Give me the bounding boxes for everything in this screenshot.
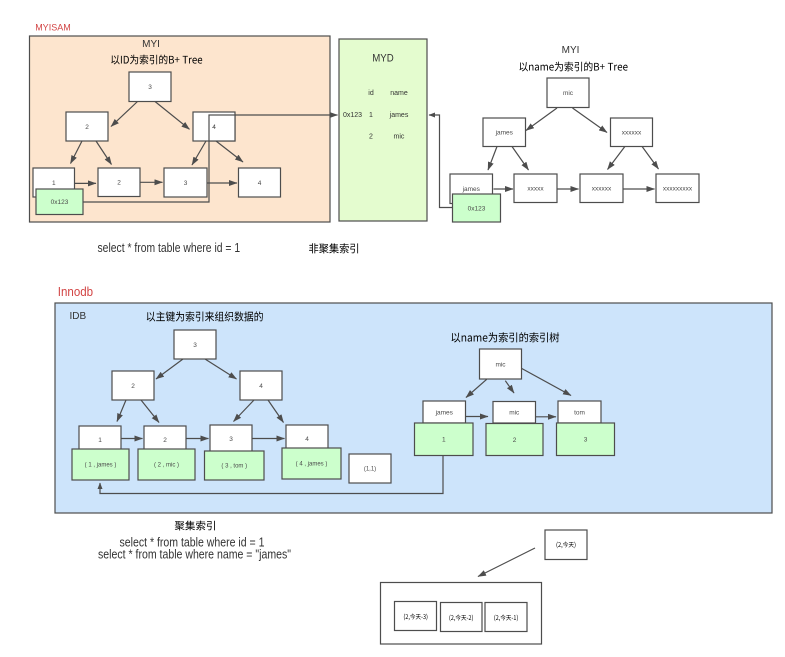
svg-text:xxxxxxxxx: xxxxxxxxx bbox=[663, 186, 693, 193]
svg-text:3: 3 bbox=[584, 437, 588, 444]
svg-text:4: 4 bbox=[305, 436, 309, 443]
svg-text:4: 4 bbox=[258, 180, 262, 187]
svg-text:3: 3 bbox=[229, 436, 233, 443]
svg-text:james: james bbox=[495, 130, 514, 137]
svg-text:xxxxxx: xxxxxx bbox=[622, 130, 642, 137]
svg-text:2: 2 bbox=[163, 437, 167, 444]
svg-text:1: 1 bbox=[98, 437, 102, 444]
svg-text:1: 1 bbox=[369, 112, 373, 119]
svg-text:2: 2 bbox=[131, 383, 135, 390]
svg-text:( 1 , james ): ( 1 , james ) bbox=[85, 463, 117, 469]
svg-text:select * from table where name: select * from table where name = "james" bbox=[98, 548, 291, 562]
svg-text:tom: tom bbox=[574, 409, 585, 416]
svg-text:xxxxxx: xxxxxx bbox=[592, 186, 612, 193]
svg-text:(1,1): (1,1) bbox=[364, 467, 376, 473]
svg-text:0x123: 0x123 bbox=[468, 205, 486, 212]
svg-text:2: 2 bbox=[117, 180, 121, 187]
svg-text:james: james bbox=[389, 112, 409, 119]
svg-text:MYD: MYD bbox=[372, 53, 394, 65]
svg-text:1: 1 bbox=[442, 437, 446, 444]
svg-text:( 2 , mic ): ( 2 , mic ) bbox=[154, 463, 179, 469]
svg-text:3: 3 bbox=[193, 342, 197, 349]
svg-text:mic: mic bbox=[394, 134, 405, 141]
svg-text:mic: mic bbox=[509, 410, 520, 417]
svg-text:1: 1 bbox=[52, 180, 56, 187]
svg-text:4: 4 bbox=[212, 124, 216, 131]
svg-text:0x123: 0x123 bbox=[343, 112, 362, 119]
svg-text:2: 2 bbox=[369, 134, 373, 141]
svg-text:3: 3 bbox=[148, 84, 152, 91]
svg-text:xxxxx: xxxxx bbox=[527, 186, 544, 193]
svg-text:id: id bbox=[368, 90, 374, 97]
svg-text:MYI: MYI bbox=[562, 45, 580, 56]
svg-text:4: 4 bbox=[259, 383, 263, 390]
svg-text:0x123: 0x123 bbox=[51, 199, 69, 206]
svg-text:( 3 , tom ): ( 3 , tom ) bbox=[221, 464, 247, 470]
svg-text:MYI: MYI bbox=[142, 39, 160, 50]
svg-text:2: 2 bbox=[85, 124, 89, 131]
svg-text:james: james bbox=[435, 409, 454, 416]
svg-text:3: 3 bbox=[184, 180, 188, 187]
svg-text:MYISAM: MYISAM bbox=[35, 22, 71, 32]
svg-text:name: name bbox=[390, 90, 408, 97]
svg-text:( 4 , james ): ( 4 , james ) bbox=[296, 462, 328, 468]
svg-text:select * from table where id =: select * from table where id = 1 bbox=[98, 241, 241, 255]
svg-text:2: 2 bbox=[513, 437, 517, 444]
svg-text:mic: mic bbox=[563, 90, 574, 97]
svg-text:mic: mic bbox=[495, 361, 506, 368]
svg-text:james: james bbox=[462, 186, 481, 193]
svg-text:IDB: IDB bbox=[70, 311, 87, 322]
svg-text:Innodb: Innodb bbox=[58, 284, 93, 299]
